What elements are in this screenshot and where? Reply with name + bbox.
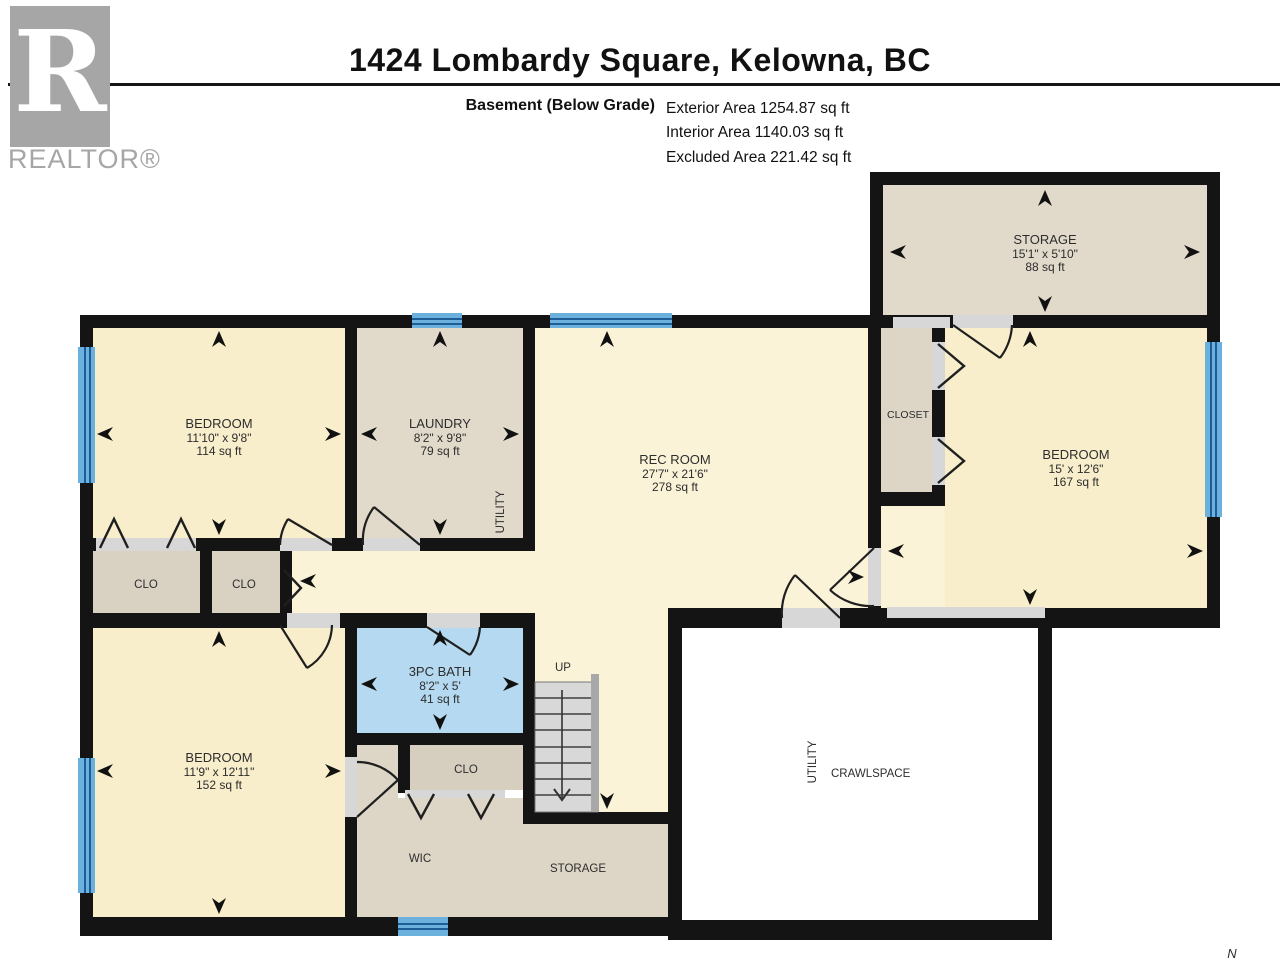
svg-text:114 sq ft: 114 sq ft	[196, 444, 242, 458]
svg-text:3PC BATH: 3PC BATH	[409, 664, 472, 679]
svg-text:BEDROOM: BEDROOM	[1042, 447, 1109, 462]
svg-text:278 sq ft: 278 sq ft	[652, 480, 699, 494]
hall-right	[881, 506, 945, 608]
label-closet-right: CLOSET	[887, 409, 930, 421]
realtor-logo-letter: R	[13, 17, 106, 129]
north-indicator: N	[1227, 946, 1237, 960]
svg-text:LAUNDRY: LAUNDRY	[409, 416, 471, 431]
label-closet-left: CLO	[134, 579, 158, 591]
svg-text:79 sq ft: 79 sq ft	[420, 444, 460, 458]
svg-text:8'2" x 5': 8'2" x 5'	[419, 679, 461, 693]
svg-text:11'9" x 12'11": 11'9" x 12'11"	[184, 765, 255, 779]
floor-plan: STORAGE 15'1" x 5'10" 88 sq ft BEDROOM 1…	[0, 0, 1280, 960]
label-stairs-up: UP	[555, 662, 571, 674]
label-utility-laundry: UTILITY	[495, 490, 507, 533]
svg-text:STORAGE: STORAGE	[1013, 232, 1077, 247]
hallway	[292, 551, 535, 613]
svg-text:15'1" x 5'10": 15'1" x 5'10"	[1012, 247, 1078, 261]
label-closet-middle: CLO	[232, 579, 256, 591]
svg-text:8'2" x 9'8": 8'2" x 9'8"	[414, 431, 466, 445]
label-wic: WIC	[409, 853, 431, 865]
svg-text:167 sq ft: 167 sq ft	[1053, 475, 1100, 489]
svg-text:15' x 12'6": 15' x 12'6"	[1049, 462, 1104, 476]
svg-text:88 sq ft: 88 sq ft	[1025, 260, 1065, 274]
svg-text:152 sq ft: 152 sq ft	[196, 778, 243, 792]
staircase	[535, 674, 599, 812]
room-wic-b	[357, 798, 523, 917]
window-top-laundry	[412, 313, 462, 328]
svg-text:27'7" x 21'6": 27'7" x 21'6"	[642, 467, 708, 481]
window-left-bottom	[78, 758, 95, 893]
svg-text:BEDROOM: BEDROOM	[185, 416, 252, 431]
label-utility-crawlspace: UTILITY	[807, 740, 819, 783]
svg-text:BEDROOM: BEDROOM	[185, 750, 252, 765]
realtor-logo: R	[10, 6, 110, 147]
svg-text:11'10" x 9'8": 11'10" x 9'8"	[187, 431, 252, 445]
window-bottom-wic	[398, 917, 448, 936]
svg-text:41 sq ft: 41 sq ft	[420, 692, 460, 706]
label-crawlspace: CRAWLSPACE	[831, 768, 911, 780]
window-top-rec	[550, 313, 672, 328]
window-right-bedroom	[1205, 342, 1222, 517]
window-left-top	[78, 347, 95, 483]
label-storage-bottom: STORAGE	[550, 863, 606, 875]
label-closet-bath: CLO	[454, 764, 478, 776]
svg-text:REC ROOM: REC ROOM	[639, 452, 711, 467]
